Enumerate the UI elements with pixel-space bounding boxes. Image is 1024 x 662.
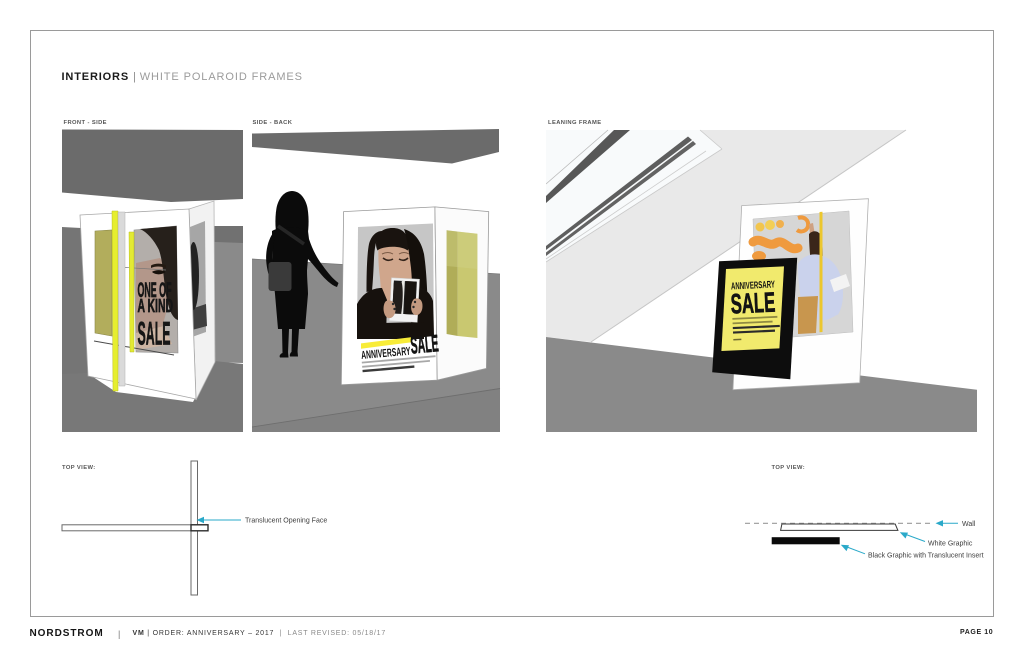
svg-text:SALE: SALE xyxy=(409,330,439,359)
svg-text:Black Graphic with Translucent: Black Graphic with Translucent Insert xyxy=(868,553,984,560)
svg-text:Wall: Wall xyxy=(962,521,976,528)
svg-text:SALE: SALE xyxy=(138,316,171,352)
svg-text:Translucent Opening Face: Translucent Opening Face xyxy=(245,518,327,525)
svg-text:White Graphic: White Graphic xyxy=(928,541,973,548)
svg-text:SALE: SALE xyxy=(730,287,776,320)
svg-text:A KIND: A KIND xyxy=(138,296,174,316)
